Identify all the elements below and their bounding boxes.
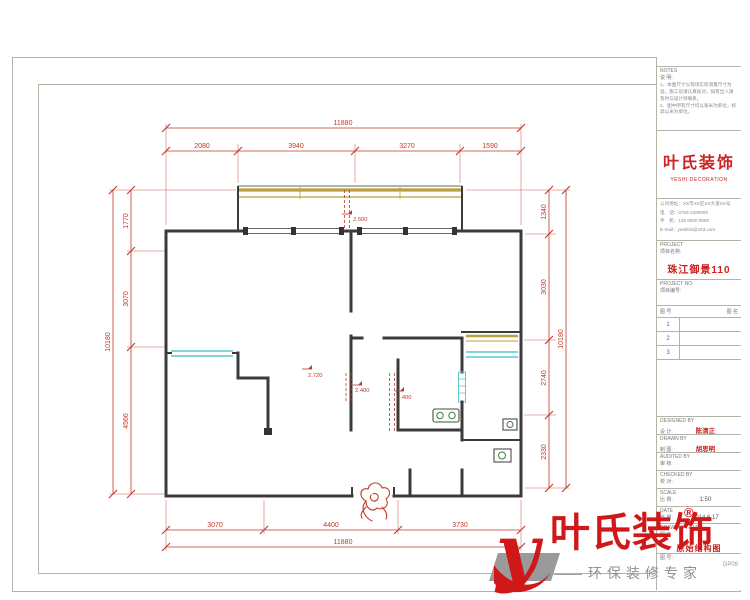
- bathroom-sink-fixture: [433, 409, 459, 422]
- designed-by-name: 陈清正: [696, 425, 716, 435]
- title-block-spacer: [657, 57, 741, 67]
- level-label: 2.500: [353, 217, 368, 223]
- dim-label: 2330: [541, 444, 548, 460]
- project-no-section: PROJECT NO. 项目编号:: [657, 280, 741, 306]
- logo-tagline-dash: ——: [554, 565, 582, 581]
- dimension-chain-left: 1770 3070 4566 10180: [105, 186, 236, 498]
- sheet-index-header: 图 号 图 名: [657, 306, 741, 318]
- contact-section: 公司地址：XX市XX区XX大道XX号 电 话：0753-2280000 手 机：…: [657, 199, 741, 241]
- sheet-index-row: 2: [657, 332, 741, 346]
- dim-label: 2080: [194, 143, 210, 150]
- dim-label: 11880: [334, 539, 353, 546]
- project-name: 珠江御景110: [660, 261, 738, 276]
- company-section: 叶氏装饰 YESHI DECORATION: [657, 131, 741, 198]
- dim-label: 4400: [323, 522, 339, 529]
- dim-label: 10180: [558, 329, 565, 349]
- dim-label: 1340: [541, 204, 548, 220]
- notes-line: 2、图中所有尺寸均以毫米为单位，标高以米为单位。: [660, 103, 738, 117]
- beam-level-annotations: 2.500 2.720 2.400 2.400: [302, 190, 412, 432]
- scale-section: SCALE 比 例: 1:50: [657, 489, 741, 507]
- audited-by-sub-label: 审 核:: [660, 461, 738, 468]
- dim-label: 3030: [541, 279, 548, 295]
- logo-tagline-text: 环保装修专家: [588, 565, 702, 581]
- contact-line: E-mail：yeshizs@163.com: [660, 226, 738, 235]
- level-label: 2.400: [397, 395, 412, 401]
- audited-by-section: AUDITED BY 审 核:: [657, 453, 741, 471]
- drawn-by-section: DRAWN BY 制 图: 胡思明: [657, 435, 741, 453]
- project-label: PROJECT: [660, 242, 738, 249]
- dim-label: 10180: [105, 332, 112, 352]
- scale-label: SCALE: [660, 490, 738, 497]
- sheet-index-table: 图 号 图 名 1 2 3: [657, 306, 741, 417]
- sheet-index-number: 2: [657, 332, 680, 345]
- dim-label: 11880: [334, 120, 353, 127]
- sheet-index-row: 3: [657, 346, 741, 360]
- contact-line: 公司地址：XX市XX区XX大道XX号: [660, 200, 738, 209]
- dim-label: 3070: [207, 522, 223, 529]
- dim-label: 2740: [541, 370, 548, 386]
- dimension-chain-bottom: 3070 4400 3730 11880: [162, 500, 525, 551]
- drawn-by-label: DRAWN BY: [660, 436, 738, 443]
- audited-by-label: AUDITED BY: [660, 454, 738, 461]
- contact-line: 电 话：0753-2280000: [660, 209, 738, 218]
- dim-label: 3070: [123, 291, 130, 307]
- registered-trademark-icon: ®: [684, 505, 694, 520]
- sheet-index-number: 3: [657, 346, 680, 359]
- notes-label: NOTES: [660, 68, 738, 75]
- level-label: 2.720: [308, 373, 323, 379]
- level-label: 2.400: [355, 388, 370, 394]
- dim-label: 3940: [288, 143, 304, 150]
- contact-line: 手 机：135 0000 0000: [660, 217, 738, 226]
- checked-by-label: CHECKED BY: [660, 472, 738, 479]
- sheet-index-header-left: 图 号: [660, 308, 671, 315]
- sheet-index-row: 1: [657, 318, 741, 332]
- drawn-by-name: 胡思明: [696, 443, 716, 453]
- dim-label: 3270: [399, 143, 415, 150]
- dim-label: 4566: [123, 413, 130, 429]
- sheet-index-number: 1: [657, 318, 680, 331]
- dim-label: 3730: [452, 522, 468, 529]
- dim-label: 1590: [482, 143, 498, 150]
- scale-value: 1:50: [700, 497, 712, 503]
- project-sub-label: 项目名称:: [660, 249, 738, 256]
- checked-by-section: CHECKED BY 校 对:: [657, 471, 741, 489]
- dim-label: 1770: [123, 213, 130, 229]
- notes-line: 1、本图尺寸以现场实际测量尺寸为准，施工前请认真核对，如有出入请及时与设计师联系…: [660, 82, 738, 103]
- notes-sub-label: 说 明:: [660, 75, 738, 82]
- scale-sub-label: 比 例:: [660, 497, 673, 504]
- notes-section: NOTES 说 明: 1、本图尺寸以现场实际测量尺寸为准，施工前请认真核对，如有…: [657, 67, 741, 132]
- company-name-en: YESHI DECORATION: [660, 177, 738, 183]
- entry-flower-symbol: [361, 483, 390, 521]
- project-no-sub-label: 项目编号:: [660, 288, 738, 295]
- project-section: PROJECT 项目名称: 珠江御景110: [657, 241, 741, 281]
- sheet: 2.500 2.720 2.400 2.400: [0, 0, 750, 600]
- logo-tagline: ——环保装修专家: [554, 563, 702, 583]
- company-name: 叶氏装饰: [660, 149, 738, 173]
- checked-by-sub-label: 校 对:: [660, 479, 738, 486]
- dimension-chain-top: 11880 2080 3940 3270 1590: [162, 120, 525, 225]
- designed-by-section: DESIGNED BY 设 计: 陈清正: [657, 417, 741, 435]
- walls-group: [166, 186, 521, 496]
- designed-by-label: DESIGNED BY: [660, 418, 738, 425]
- company-logo: y 叶氏装饰 ® ——环保装修专家: [488, 505, 746, 597]
- sheet-index-header-right: 图 名: [727, 308, 738, 315]
